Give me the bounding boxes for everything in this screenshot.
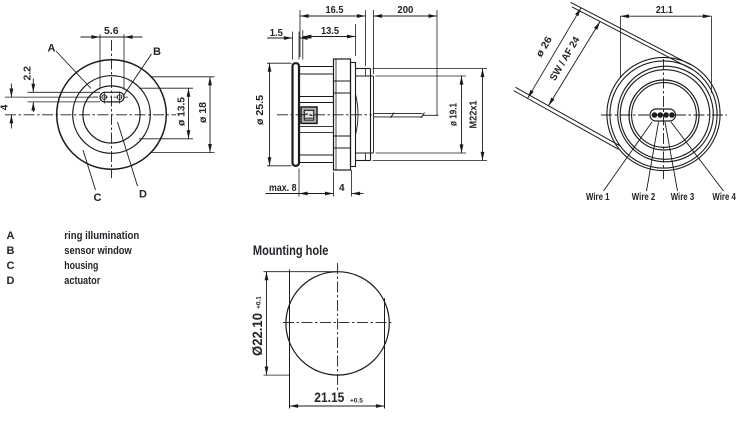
svg-text:max. 8: max. 8 [269, 183, 297, 194]
svg-text:C: C [7, 260, 15, 272]
svg-text:21.15: 21.15 [314, 390, 344, 405]
svg-text:4: 4 [0, 104, 11, 110]
svg-text:ø 26: ø 26 [534, 34, 555, 59]
svg-text:B: B [153, 46, 161, 58]
svg-text:Ø22.10: Ø22.10 [250, 313, 265, 356]
svg-text:1.5: 1.5 [270, 28, 283, 39]
svg-text:housing: housing [64, 260, 98, 272]
svg-text:2.2: 2.2 [23, 66, 34, 81]
svg-text:+0.5: +0.5 [350, 398, 363, 405]
svg-text:A: A [7, 230, 15, 242]
svg-text:200: 200 [397, 5, 413, 16]
svg-text:Mounting hole: Mounting hole [253, 243, 329, 258]
svg-text:ø 19.1: ø 19.1 [449, 103, 460, 126]
svg-text:actuator: actuator [64, 275, 101, 287]
svg-text:B: B [7, 245, 15, 257]
svg-text:ø 18: ø 18 [198, 102, 209, 123]
svg-text:D: D [7, 275, 15, 287]
svg-text:21.1: 21.1 [656, 5, 673, 16]
svg-text:Wire 2: Wire 2 [632, 192, 656, 203]
svg-text:A: A [48, 43, 56, 55]
svg-text:16.5: 16.5 [326, 5, 344, 16]
svg-text:ø 13.5: ø 13.5 [177, 97, 188, 126]
svg-text:ø 25.5: ø 25.5 [255, 95, 266, 125]
svg-text:C: C [94, 192, 102, 204]
svg-text:Wire 4: Wire 4 [712, 192, 736, 203]
svg-text:Wire 3: Wire 3 [671, 192, 695, 203]
svg-text:Wire 1: Wire 1 [586, 192, 610, 203]
svg-text:4: 4 [339, 183, 345, 194]
svg-text:M22x1: M22x1 [469, 100, 480, 128]
svg-text:ring illumination: ring illumination [64, 230, 139, 242]
svg-text:5.6: 5.6 [104, 26, 119, 37]
svg-text:+0.1: +0.1 [256, 296, 263, 309]
svg-text:D: D [139, 189, 147, 201]
svg-text:13.5: 13.5 [321, 26, 339, 37]
svg-text:sensor window: sensor window [64, 245, 132, 257]
